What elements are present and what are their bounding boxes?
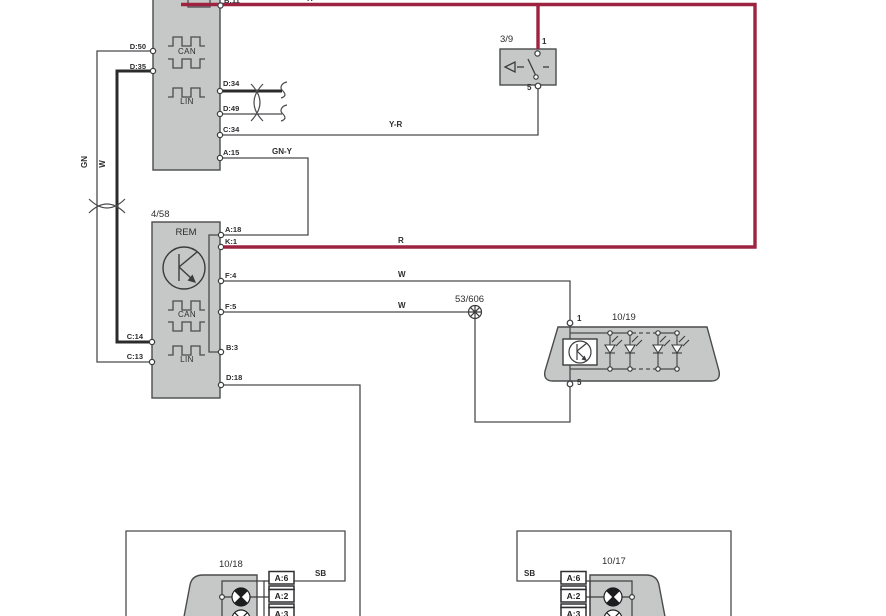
can-label: CAN	[170, 311, 204, 319]
pin-label-b3: B:3	[226, 344, 238, 352]
rem-name-label: REM	[168, 228, 204, 238]
pin-label-d49: D:49	[223, 105, 239, 113]
wire-label-sb-right: SB	[524, 570, 535, 578]
bulb-icon	[604, 588, 622, 616]
ecu-top-body	[153, 0, 220, 170]
bulb-icon	[232, 588, 250, 616]
pin-label-switch-1: 1	[542, 38, 546, 46]
pin-label-right-a6: A:6	[561, 574, 586, 583]
pin-label-a15: A:15	[223, 149, 239, 157]
wire-label-gny: GN-Y	[272, 148, 292, 156]
pin-label-d35: D:35	[120, 63, 146, 71]
wire-label-r-k1: R	[398, 237, 404, 245]
pin-label-d50: D:50	[120, 43, 146, 51]
wire-label-r-top: R	[307, 0, 313, 3]
pin-label-c13: C:13	[117, 353, 143, 361]
wiring-diagram-canvas	[0, 0, 886, 616]
connector-pin-boxes	[269, 572, 586, 616]
pin-label-d34: D:34	[223, 80, 239, 88]
pin-label-right-a2: A:2	[561, 592, 586, 601]
wire-label-w-vert: W	[99, 160, 107, 168]
component-ref-10-17: 10/17	[602, 557, 626, 567]
wire-break-icon	[281, 82, 287, 98]
power-wires-red	[181, 5, 755, 248]
pin-label-f4: F:4	[225, 272, 236, 280]
pin-label-a18: A:18	[225, 226, 241, 234]
component-ref-53-606: 53/606	[455, 295, 484, 305]
pin-label-left-a3: A:3	[269, 610, 294, 616]
wire-yr-c34-switch5	[220, 89, 538, 135]
pin-label-f5: F:5	[225, 303, 236, 311]
wire-r-main	[181, 5, 755, 248]
wire-label-gn: GN	[81, 156, 89, 168]
lin-label: LIN	[170, 98, 204, 106]
led-driver-box	[563, 339, 597, 365]
pin-label-left-a6: A:6	[269, 574, 294, 583]
wire-gny-a15-a18	[220, 158, 308, 235]
component-ref-10-18: 10/18	[219, 560, 243, 570]
pin-label-b11: B:11	[224, 0, 240, 5]
component-ref-10-19: 10/19	[612, 313, 636, 323]
wire-w-f4-led1	[221, 281, 570, 320]
wire-label-w-f5: W	[398, 302, 406, 310]
pin-label-switch-5: 5	[527, 84, 531, 92]
wire-label-sb-left: SB	[315, 570, 326, 578]
pin-label-led-1: 1	[577, 315, 581, 323]
pin-label-led-5: 5	[577, 379, 581, 387]
wiring-diagram-page: B:11 R D:50 D:35 D:34 D:49 C:34 A:15 CAN…	[0, 0, 886, 616]
lin-label: LIN	[170, 356, 204, 364]
component-ref-3-9: 3/9	[500, 35, 513, 45]
pin-label-d18: D:18	[226, 374, 242, 382]
wire-gn-d50-c13	[97, 51, 153, 362]
pin-label-c34: C:34	[223, 126, 239, 134]
pin-label-k1: K:1	[225, 238, 237, 246]
wire-label-w-f4: W	[398, 271, 406, 279]
pin-label-right-a3: A:3	[561, 610, 586, 616]
component-ref-4-58: 4/58	[151, 210, 170, 220]
pin-label-left-a2: A:2	[269, 592, 294, 601]
wire-w-d35-c14	[117, 71, 153, 342]
wire-break-icon	[281, 105, 287, 121]
splice-icon	[469, 306, 482, 319]
wire-label-yr: Y-R	[389, 121, 402, 129]
can-label: CAN	[170, 48, 204, 56]
pin-label-c14: C:14	[117, 333, 143, 341]
